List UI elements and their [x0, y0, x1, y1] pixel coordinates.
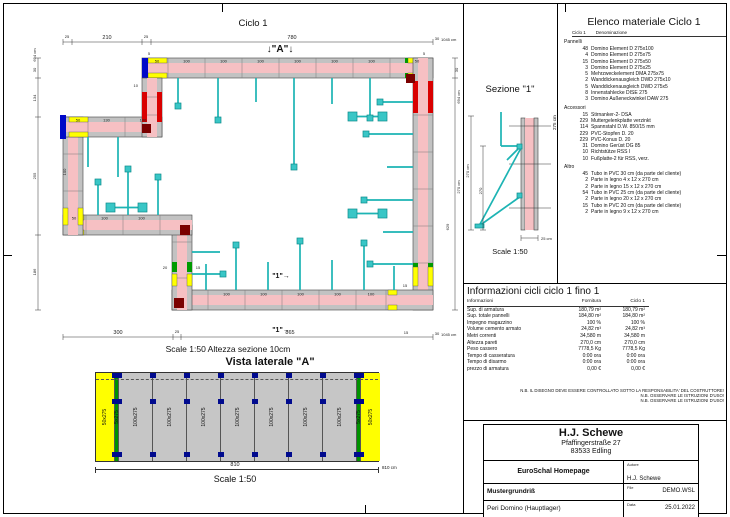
formwork-panel: 100x275: [187, 373, 221, 461]
svg-text:694 cm: 694 cm: [32, 48, 37, 62]
svg-text:865: 865: [285, 330, 294, 336]
svg-text:100: 100: [297, 292, 304, 297]
cycle-info-row: Impegno magazzino 100 % 100 %: [467, 320, 649, 327]
material-group-header: Pannelli: [564, 39, 726, 46]
cycle-info-row: Sup. di armatura 180,79 m² 180,79 m²: [467, 307, 649, 314]
company-street: Pfaffingerstraße 27: [484, 440, 698, 448]
svg-text:629: 629: [445, 223, 450, 230]
svg-text:100: 100: [294, 59, 301, 64]
dim-label: 30: [435, 36, 440, 41]
material-group-header: Altro: [564, 164, 726, 171]
svg-text:50: 50: [415, 59, 420, 64]
svg-text:100: 100: [331, 59, 338, 64]
svg-text:5: 5: [423, 51, 426, 56]
fold-mark: [222, 4, 223, 12]
cycle-info-row: Peso cassero 7778,5 Kg 7778,5 Kg: [467, 346, 649, 353]
material-name: Domino Außeneckwinkel DAW 275: [591, 96, 668, 102]
svg-text:25 cm: 25 cm: [541, 236, 553, 241]
formwork-panel: 100x275: [221, 373, 255, 461]
author-value: H.J. Schewe: [627, 476, 661, 482]
svg-text:15: 15: [404, 330, 409, 335]
panel-label: 100: [183, 59, 190, 64]
author-label: Autore: [627, 462, 695, 467]
company-city: 83533 Edling: [484, 448, 698, 456]
fold-mark: [365, 505, 366, 514]
svg-text:50: 50: [72, 216, 77, 221]
clamp-icon: [218, 452, 224, 457]
clamp-icon: [286, 452, 292, 457]
plan-title: Ciclo 1: [238, 18, 267, 29]
material-group-header: Accessori: [564, 105, 726, 112]
cycle-info-rows: Sup. di armatura 180,79 m² 180,79 m² Sup…: [467, 307, 649, 373]
svg-text:1045 cm: 1045 cm: [441, 332, 457, 337]
clamp-icon: [286, 399, 292, 404]
dim-label: 25: [144, 34, 149, 39]
material-qty: 3: [562, 96, 591, 102]
section-drawing: 270 cm 270 25 cm Scale 1:50: [463, 96, 557, 256]
svg-text:100: 100: [62, 168, 67, 175]
material-col-name: Denominazione: [596, 30, 627, 35]
cycle-info-row: Tempo di casseratura 0:00 ora 0:00 ora: [467, 353, 649, 360]
section-a-marker: ↓"A"↓: [267, 44, 294, 55]
material-list: Elenco materiale Ciclo 1 Ciclo 1 Denomin…: [562, 16, 726, 215]
svg-text:130: 130: [103, 118, 110, 123]
section-title: Sezione "1": [463, 84, 557, 95]
lateral-view-title: Vista laterale "A": [160, 356, 380, 368]
fold-mark: [565, 4, 566, 12]
divider-horizontal-titleblock: [463, 420, 727, 421]
dim-label: 780: [287, 35, 296, 41]
clamp-icon: [252, 399, 258, 404]
panel-size-label: 50x275: [368, 409, 374, 425]
clamp-icon: [358, 399, 364, 404]
clamp-icon: [150, 399, 156, 404]
panel-size-label: 100x275: [235, 407, 241, 426]
cycle-info-row: Sup. totale pannelli 184,80 m² 184,80 m²: [467, 313, 649, 320]
nb-note-line: N.B. OSSERVARE LE ISTRUZIONI D'USO!: [474, 398, 724, 403]
material-name: Fußplatte-2 für RSS, verz.: [591, 156, 649, 162]
clamp-icon: [150, 452, 156, 457]
cycle-info-row: prezzo di armatura 0,00 € 0,00 €: [467, 366, 649, 373]
project-value: Mustergrundriß: [484, 484, 624, 500]
material-qty: 2: [562, 209, 591, 215]
svg-text:30: 30: [454, 67, 459, 72]
svg-text:270 cm: 270 cm: [465, 164, 470, 178]
lateral-dashed-line: [96, 379, 378, 380]
title-block-company: H.J. Schewe Pfaffingerstraße 27 83533 Ed…: [484, 425, 698, 461]
svg-text:50: 50: [76, 118, 81, 123]
lateral-dim-total: 810 cm: [382, 465, 397, 470]
divider-horizontal-info: [463, 283, 727, 284]
clamp-icon: [184, 373, 190, 378]
material-col-qty: Ciclo 1: [572, 30, 586, 35]
panel-size-label: 100x275: [167, 407, 173, 426]
clamp-icon: [320, 399, 326, 404]
clamp-icon: [286, 373, 292, 378]
svg-text:15: 15: [403, 283, 408, 288]
formwork-panel: 100x275: [289, 373, 323, 461]
company-name: H.J. Schewe: [484, 427, 698, 440]
svg-text:100: 100: [368, 59, 375, 64]
formwork-panel: 100x275: [153, 373, 187, 461]
cycle-info-row: Altezza pareti 270,0 cm 270,0 cm: [467, 340, 649, 347]
material-row: 2 Parte in legno 9 x 12 x 270 cm: [562, 209, 726, 215]
svg-text:5: 5: [148, 51, 151, 56]
nb-notes: N.B. IL DISEGNO DEVE ESSERE CONTROLLATO …: [474, 388, 724, 404]
formwork-panel: 50x275: [96, 373, 115, 461]
material-list-header: Ciclo 1 Denominazione: [572, 30, 726, 37]
clamp-icon: [218, 373, 224, 378]
material-qty: 10: [562, 156, 591, 162]
client-value: EuroSchal Homepage: [484, 461, 624, 483]
svg-text:100: 100: [260, 292, 267, 297]
svg-text:100: 100: [220, 59, 227, 64]
clamp-icon: [184, 452, 190, 457]
clamp-icon: [252, 452, 258, 457]
svg-text:270: 270: [478, 187, 483, 194]
svg-text:10: 10: [134, 83, 139, 88]
panel-size-label: 100x275: [337, 407, 343, 426]
plan-view: Ciclo 1 25 210 25 780 30 1045 cm ↓"A"↓: [28, 12, 463, 362]
lateral-dim-line: [95, 469, 379, 470]
section-scale: Scale 1:50: [492, 247, 527, 256]
lateral-scale: Scale 1:50: [165, 474, 305, 484]
material-list-title: Elenco materiale Ciclo 1: [562, 16, 726, 28]
lateral-dim-label: 810: [160, 462, 310, 468]
clamp-icon: [184, 399, 190, 404]
cycle-info-title: Informazioni cicli ciclo 1 fino 1: [467, 286, 649, 297]
clamp-icon: [116, 373, 122, 378]
clamp-icon: [320, 452, 326, 457]
svg-text:100: 100: [140, 118, 147, 123]
panel-size-label: 100x275: [133, 407, 139, 426]
cycle-info-header: Informazioni Fornitura Ciclo 1: [467, 299, 649, 307]
lateral-view-strip: 50x275 5x275 100x275 100x275: [95, 372, 379, 462]
clamp-icon: [252, 373, 258, 378]
svg-text:15: 15: [196, 265, 201, 270]
svg-text:100: 100: [257, 59, 264, 64]
section-view: Sezione "1" 270 cm 270 25 cm Scale 1:50: [463, 84, 557, 262]
cycle-info-row: Metri correnti 34,580 m 34,580 m: [467, 333, 649, 340]
formwork-panel: 100x275: [119, 373, 153, 461]
clamp-icon: [358, 452, 364, 457]
svg-text:186: 186: [32, 268, 37, 275]
panel-size-label: 100x275: [303, 407, 309, 426]
material-name: Parte in legno 9 x 12 x 270 cm: [591, 209, 659, 215]
panel-size-label: 100x275: [269, 407, 275, 426]
panel-label: 50: [155, 59, 160, 64]
clamp-icon: [150, 373, 156, 378]
formwork-panel: 100x275: [255, 373, 289, 461]
plan-scale-note: Scale 1:50 Altezza sezione 10cm: [166, 344, 291, 354]
svg-text:100: 100: [334, 292, 341, 297]
svg-text:100: 100: [101, 216, 108, 221]
material-groups: Pannelli 48 Domino Element D 275x100 4 D…: [562, 39, 726, 215]
date-value: 25.01.2022: [665, 505, 695, 511]
clamp-icon: [116, 452, 122, 457]
svg-text:134: 134: [32, 94, 37, 101]
site-value: Peri Domino (Hauptlager): [484, 501, 624, 517]
svg-text:25: 25: [175, 329, 180, 334]
panel-size-label: 100x275: [201, 407, 207, 426]
dim-total-label: 1045 cm: [441, 37, 457, 42]
svg-text:20: 20: [163, 265, 168, 270]
file-value: DEMO.WSL: [662, 488, 695, 494]
cycle-info-row: Volume cemento armato 24,82 m³ 24,82 m³: [467, 326, 649, 333]
clamp-icon: [320, 373, 326, 378]
svg-text:100: 100: [368, 292, 375, 297]
dim-label: 210: [102, 35, 111, 41]
svg-text:300: 300: [113, 330, 122, 336]
material-height-label: 275 cm: [552, 115, 557, 130]
svg-text:100: 100: [223, 292, 230, 297]
dim-label: 25: [65, 34, 70, 39]
section-1-marker: "1"→: [272, 273, 290, 280]
divider-vertical-right: [557, 4, 558, 283]
formwork-panel: 100x275: [323, 373, 357, 461]
drawing-page: Ciclo 1 25 210 25 780 30 1045 cm ↓"A"↓: [0, 0, 730, 517]
svg-text:30: 30: [32, 67, 37, 72]
material-row: 10 Fußplatte-2 für RSS, verz.: [562, 156, 726, 162]
panel-size-label: 50x275: [102, 409, 108, 425]
svg-text:30: 30: [435, 331, 440, 336]
title-block: H.J. Schewe Pfaffingerstraße 27 83533 Ed…: [483, 424, 699, 517]
fold-mark: [4, 255, 12, 256]
cycle-info-table: Informazioni cicli ciclo 1 fino 1 Inform…: [467, 286, 649, 373]
svg-text:694 cm: 694 cm: [456, 90, 461, 104]
material-row: 3 Domino Außeneckwinkel DAW 275: [562, 96, 726, 102]
formwork-panel: 50x275: [361, 373, 380, 461]
clamp-icon: [218, 399, 224, 404]
svg-text:100: 100: [138, 216, 145, 221]
svg-text:270 cm: 270 cm: [456, 180, 461, 194]
file-label: File: [627, 485, 633, 490]
cycle-info-row: Tempo di disarmo 0:00 ora 0:00 ora: [467, 359, 649, 366]
clamp-icon: [116, 399, 122, 404]
svg-text:255: 255: [32, 172, 37, 179]
date-label: Data: [627, 502, 635, 507]
clamp-icon: [358, 373, 364, 378]
fold-mark: [717, 255, 726, 256]
